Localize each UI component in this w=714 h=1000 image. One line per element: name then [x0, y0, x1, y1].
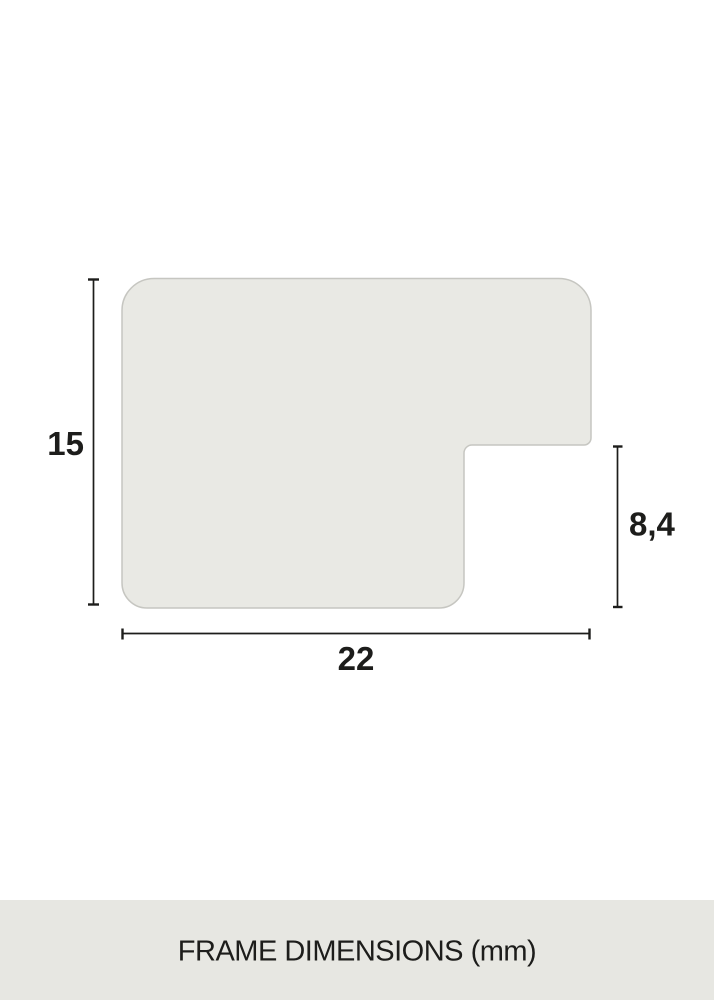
svg-text:FRAME DIMENSIONS (mm): FRAME DIMENSIONS (mm)	[178, 936, 536, 968]
svg-text:22: 22	[338, 640, 375, 677]
svg-text:15: 15	[47, 425, 84, 462]
svg-text:8,4: 8,4	[629, 506, 676, 543]
